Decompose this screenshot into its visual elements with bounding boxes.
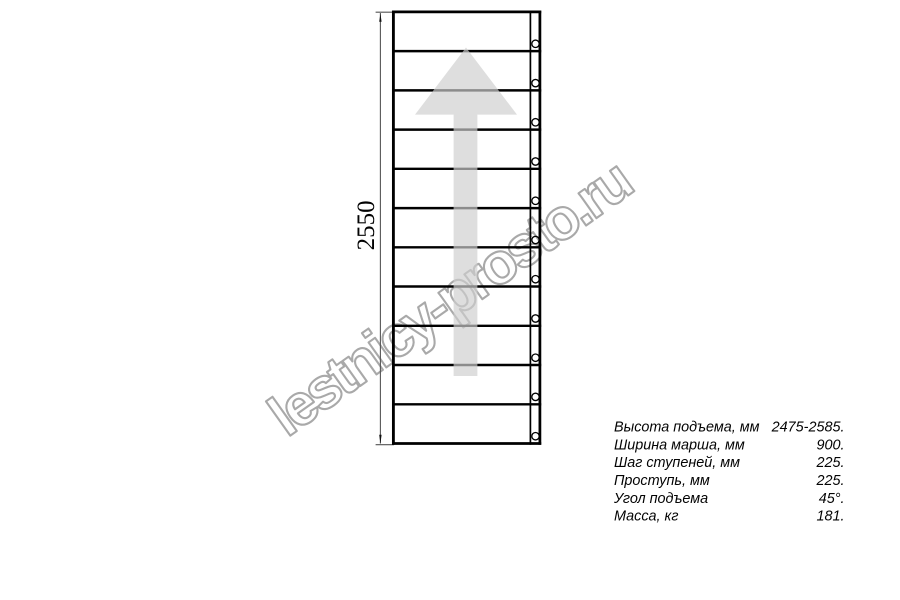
svg-text:2550: 2550 — [353, 200, 380, 250]
svg-text:900.: 900. — [816, 437, 844, 453]
svg-text:Шаг ступеней, мм: Шаг ступеней, мм — [614, 455, 740, 471]
svg-text:Ширина марша, мм: Ширина марша, мм — [614, 437, 745, 453]
svg-text:2475-2585.: 2475-2585. — [771, 420, 845, 436]
svg-text:Масса, кг: Масса, кг — [614, 509, 678, 525]
svg-text:Угол подъема: Угол подъема — [613, 491, 708, 507]
svg-text:Проступь, мм: Проступь, мм — [614, 473, 710, 489]
svg-text:225.: 225. — [815, 455, 844, 471]
svg-text:181.: 181. — [816, 509, 844, 525]
svg-text:Высота подъема, мм: Высота подъема, мм — [614, 420, 760, 436]
svg-text:45°.: 45°. — [819, 491, 845, 507]
svg-text:225.: 225. — [815, 473, 844, 489]
